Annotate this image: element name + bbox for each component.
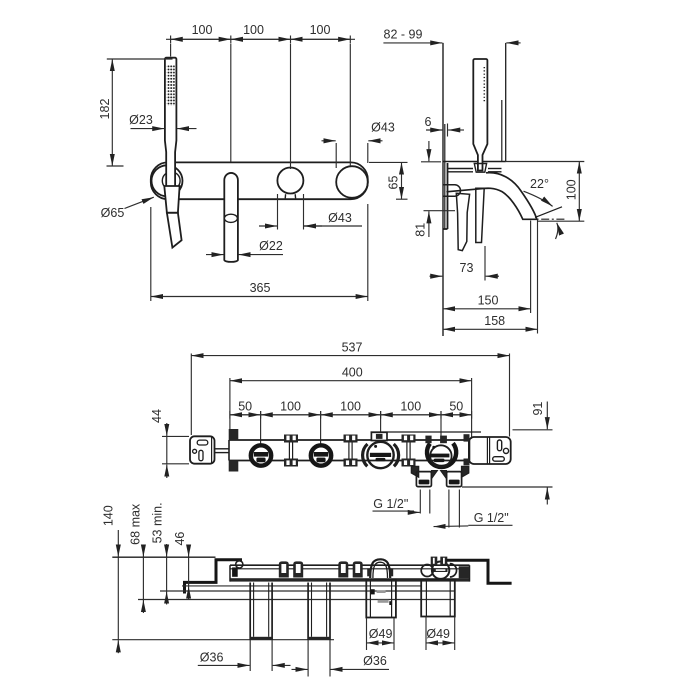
svg-text:150: 150	[478, 294, 499, 308]
svg-text:182: 182	[98, 99, 112, 120]
svg-text:537: 537	[342, 340, 363, 354]
svg-text:73: 73	[460, 261, 474, 275]
svg-text:Ø65: Ø65	[101, 206, 125, 220]
svg-text:100: 100	[340, 400, 361, 414]
svg-text:44: 44	[150, 409, 164, 423]
svg-text:Ø49: Ø49	[426, 627, 450, 641]
svg-text:Ø36: Ø36	[363, 654, 387, 668]
svg-text:100: 100	[280, 400, 301, 414]
svg-text:6: 6	[425, 115, 432, 129]
svg-text:Ø36: Ø36	[200, 650, 224, 664]
svg-text:Ø43: Ø43	[328, 211, 352, 225]
svg-text:100: 100	[564, 179, 578, 200]
svg-text:Ø43: Ø43	[371, 120, 395, 134]
svg-text:65: 65	[387, 176, 401, 190]
svg-text:22°: 22°	[530, 177, 549, 191]
svg-text:68 max: 68 max	[129, 503, 143, 545]
svg-text:100: 100	[192, 23, 213, 37]
svg-text:G 1/2": G 1/2"	[474, 511, 509, 525]
svg-text:Ø49: Ø49	[369, 627, 393, 641]
svg-text:400: 400	[342, 366, 363, 380]
svg-text:50: 50	[238, 400, 252, 414]
svg-text:53 min.: 53 min.	[151, 502, 165, 543]
svg-text:G 1/2": G 1/2"	[373, 497, 408, 511]
svg-text:46: 46	[173, 532, 187, 546]
svg-text:81: 81	[414, 223, 428, 237]
svg-text:140: 140	[102, 505, 116, 526]
svg-text:50: 50	[449, 400, 463, 414]
svg-text:100: 100	[243, 23, 264, 37]
svg-text:365: 365	[250, 281, 271, 295]
svg-text:82 - 99: 82 - 99	[384, 28, 423, 42]
svg-text:Ø22: Ø22	[259, 239, 283, 253]
svg-text:91: 91	[531, 402, 545, 416]
svg-text:Ø23: Ø23	[129, 113, 153, 127]
svg-text:158: 158	[484, 314, 505, 328]
svg-text:100: 100	[310, 23, 331, 37]
svg-text:100: 100	[400, 400, 421, 414]
